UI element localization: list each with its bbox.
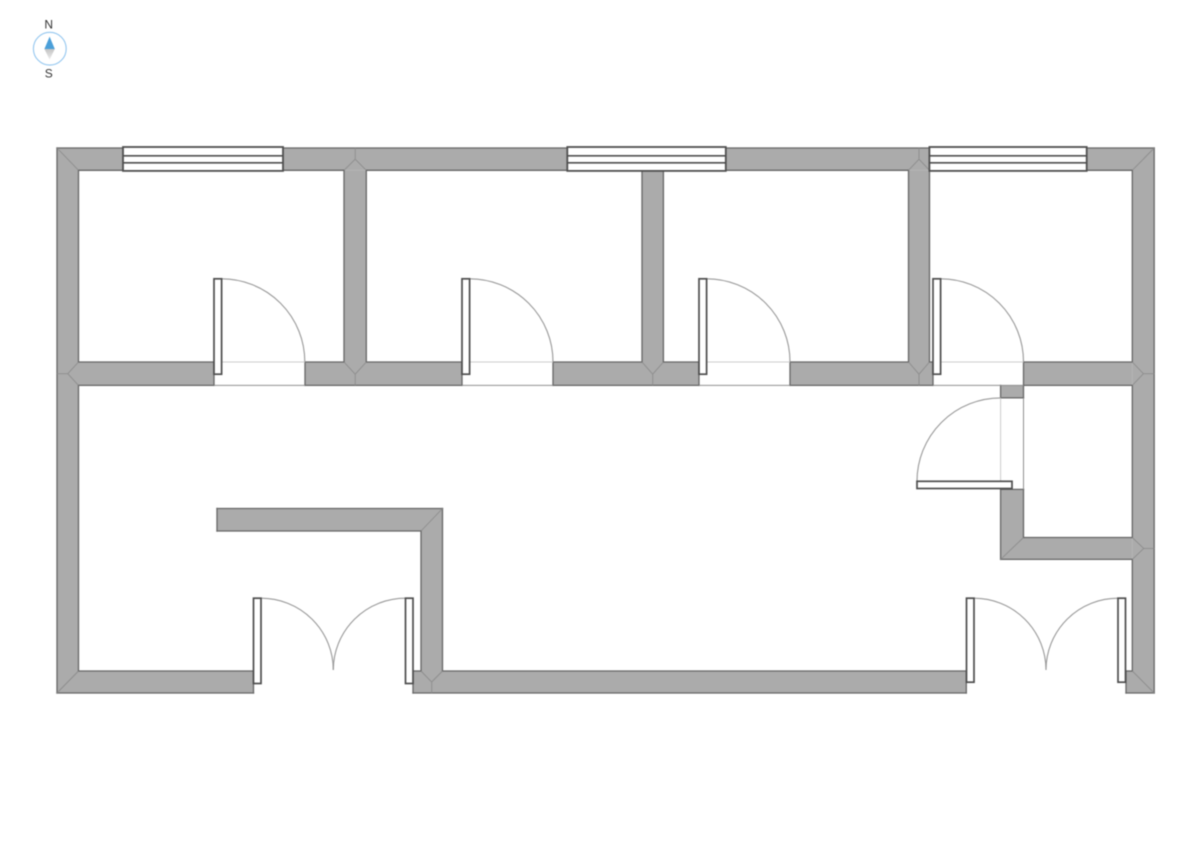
svg-text:N: N <box>44 18 53 32</box>
svg-text:S: S <box>45 67 53 81</box>
